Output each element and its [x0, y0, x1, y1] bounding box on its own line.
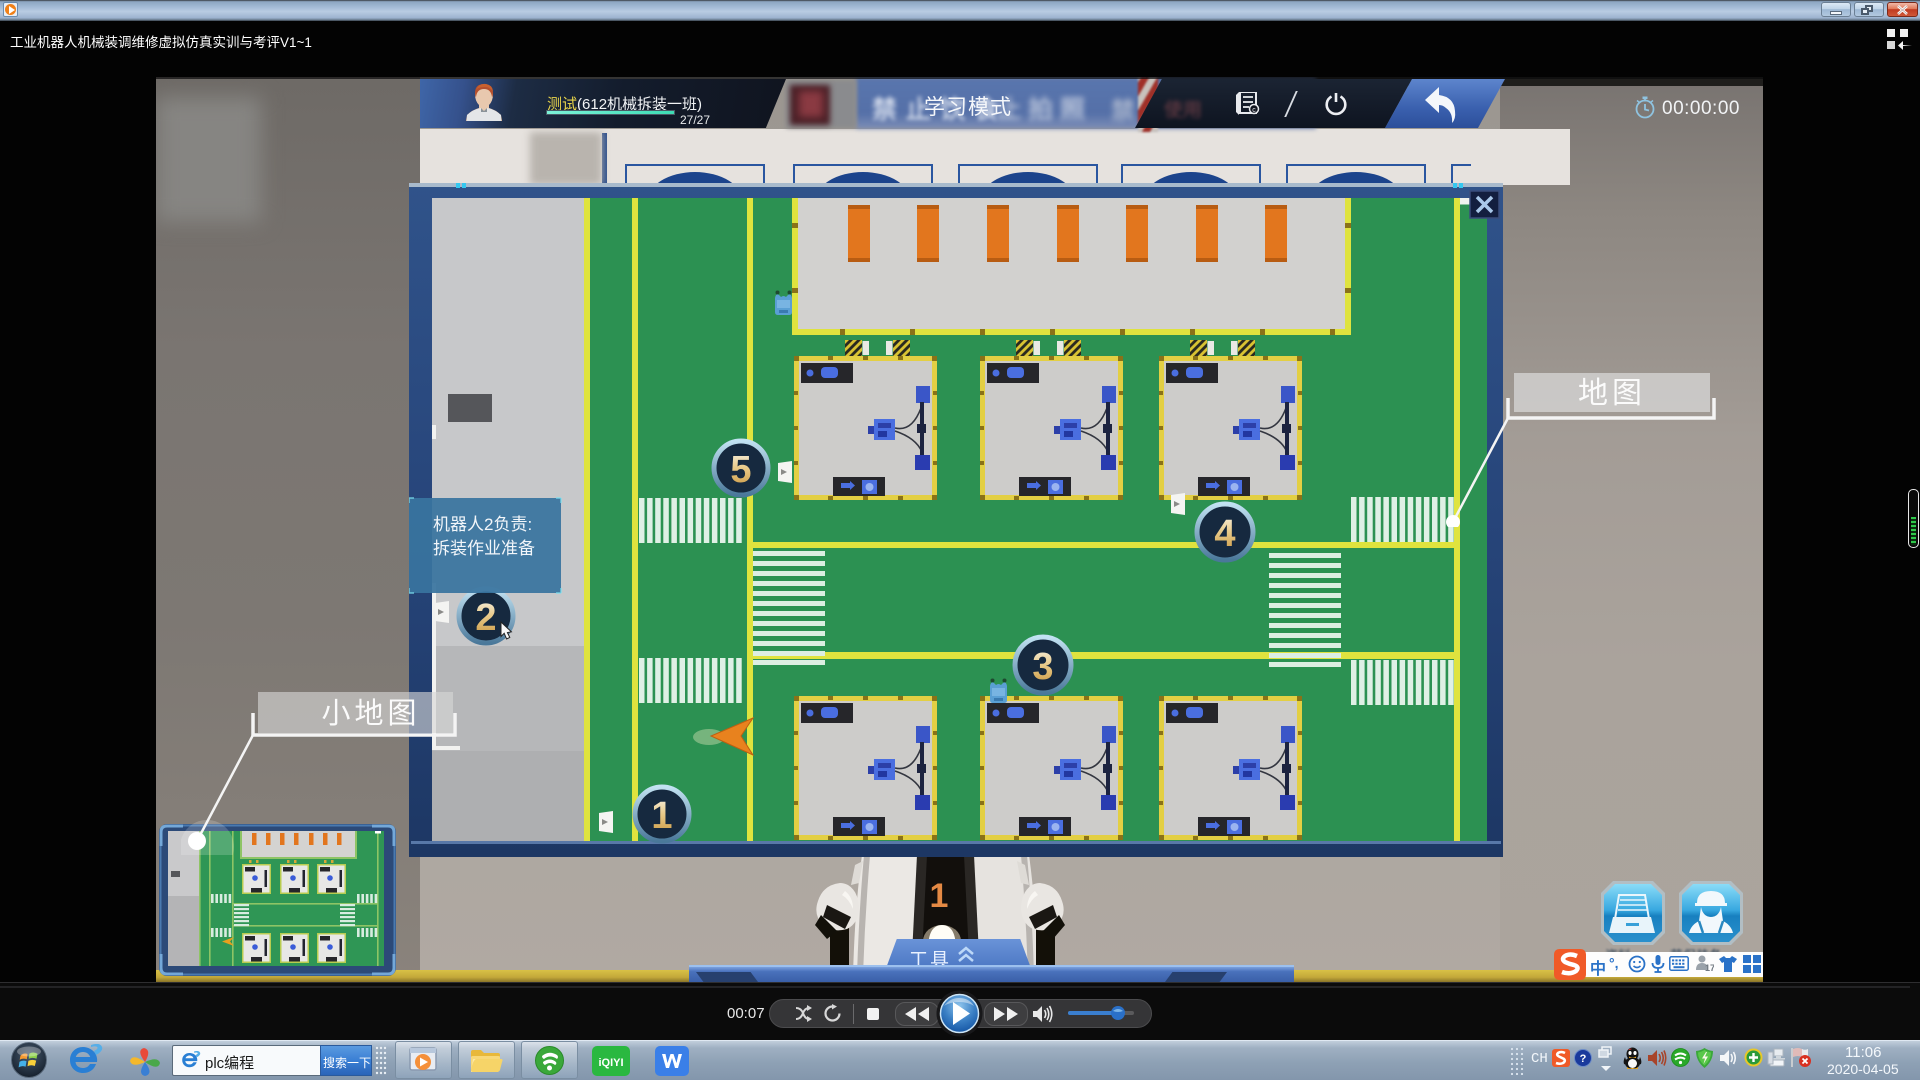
svg-text:4: 4 [1214, 513, 1235, 555]
svg-text:c: c [1252, 107, 1256, 114]
svg-text:?: ? [1580, 1053, 1587, 1065]
svg-text:小地图: 小地图 [321, 697, 420, 730]
svg-text:拆装作业准备: 拆装作业准备 [433, 539, 535, 558]
svg-text:17: 17 [1705, 963, 1714, 973]
svg-text:3: 3 [1032, 646, 1053, 688]
svg-text:1: 1 [930, 877, 949, 915]
svg-text:5: 5 [730, 449, 751, 491]
svg-text:2: 2 [475, 597, 496, 639]
svg-text:iQIYI: iQIYI [598, 1057, 623, 1069]
svg-text:机器人2负责:: 机器人2负责: [433, 515, 532, 534]
svg-text:地图: 地图 [1578, 377, 1646, 410]
svg-text:1: 1 [651, 795, 672, 837]
